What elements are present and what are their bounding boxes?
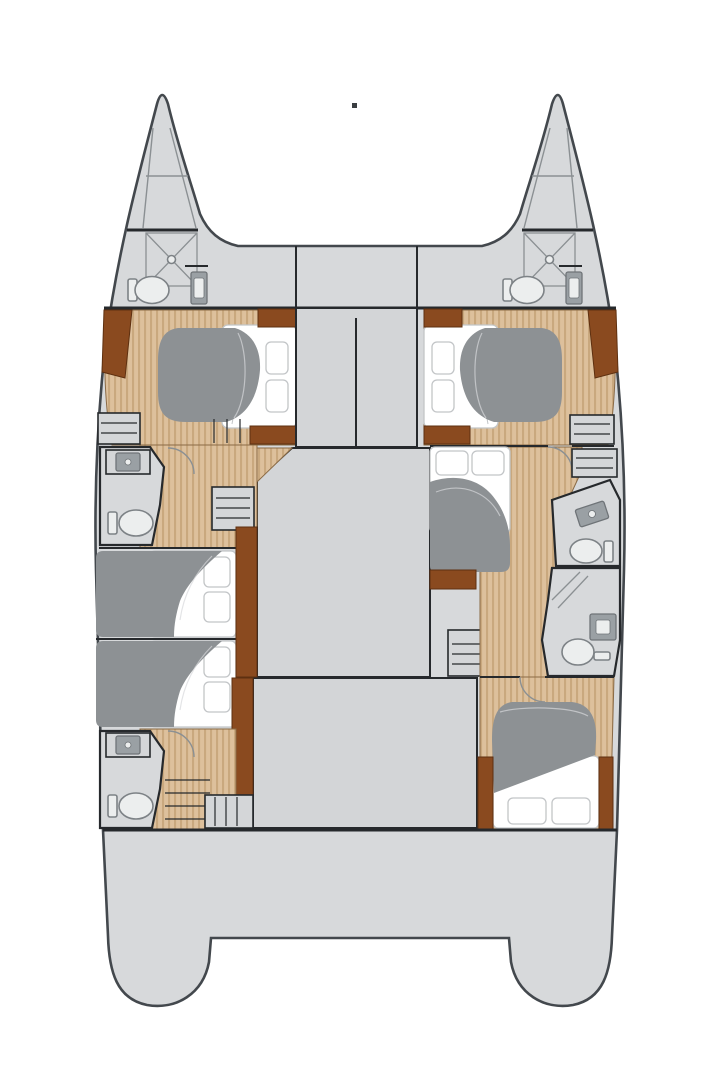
wardrobe [478, 757, 493, 830]
deckhouse-aft [253, 678, 477, 828]
toilet-tank [594, 652, 610, 660]
toilet-icon [135, 277, 169, 304]
pillow [552, 798, 590, 824]
port-aft-section [100, 729, 253, 830]
starboard-aft-cabin [478, 677, 614, 830]
cabinet [98, 413, 140, 444]
mast-step-marker [352, 103, 357, 108]
port-mid-cabin [96, 548, 236, 637]
port-aft-cabin [96, 639, 236, 727]
toilet-icon [562, 639, 594, 665]
starboard-mid-cabin [430, 447, 510, 589]
companionway-steps [205, 795, 253, 828]
catamaran-floorplan [0, 0, 720, 1080]
toilet-tank [108, 795, 117, 817]
pillow [266, 342, 288, 374]
toilet-icon [119, 510, 153, 536]
toilet-icon [119, 793, 153, 819]
port-mid-head [100, 447, 164, 545]
port-aft-head [100, 731, 164, 828]
toilet-tank [604, 541, 613, 562]
pillow [432, 342, 454, 374]
toilet-icon [510, 277, 544, 304]
headboard-shelf [258, 309, 296, 327]
footboard-shelf [424, 426, 470, 444]
pillow [204, 592, 230, 622]
toilet-tank [108, 512, 117, 534]
wardrobe [599, 757, 613, 830]
deckhouse-mid [257, 448, 430, 677]
cabinet [570, 415, 614, 444]
pillow [266, 380, 288, 412]
starboard-aft-head [542, 568, 620, 676]
footboard-shelf [430, 570, 476, 589]
shower-drain-icon [168, 256, 176, 264]
pillow [204, 682, 230, 712]
toilet-icon [570, 539, 602, 563]
floorplan-svg [0, 0, 720, 1080]
port-wardrobe [236, 527, 257, 677]
pillow [508, 798, 546, 824]
footboard-shelf [250, 426, 296, 444]
cabinet [572, 449, 617, 477]
pillow [432, 380, 454, 412]
shower-drain-icon [546, 256, 554, 264]
pillow [436, 451, 468, 475]
pillow [472, 451, 504, 475]
headboard-shelf [424, 309, 462, 327]
